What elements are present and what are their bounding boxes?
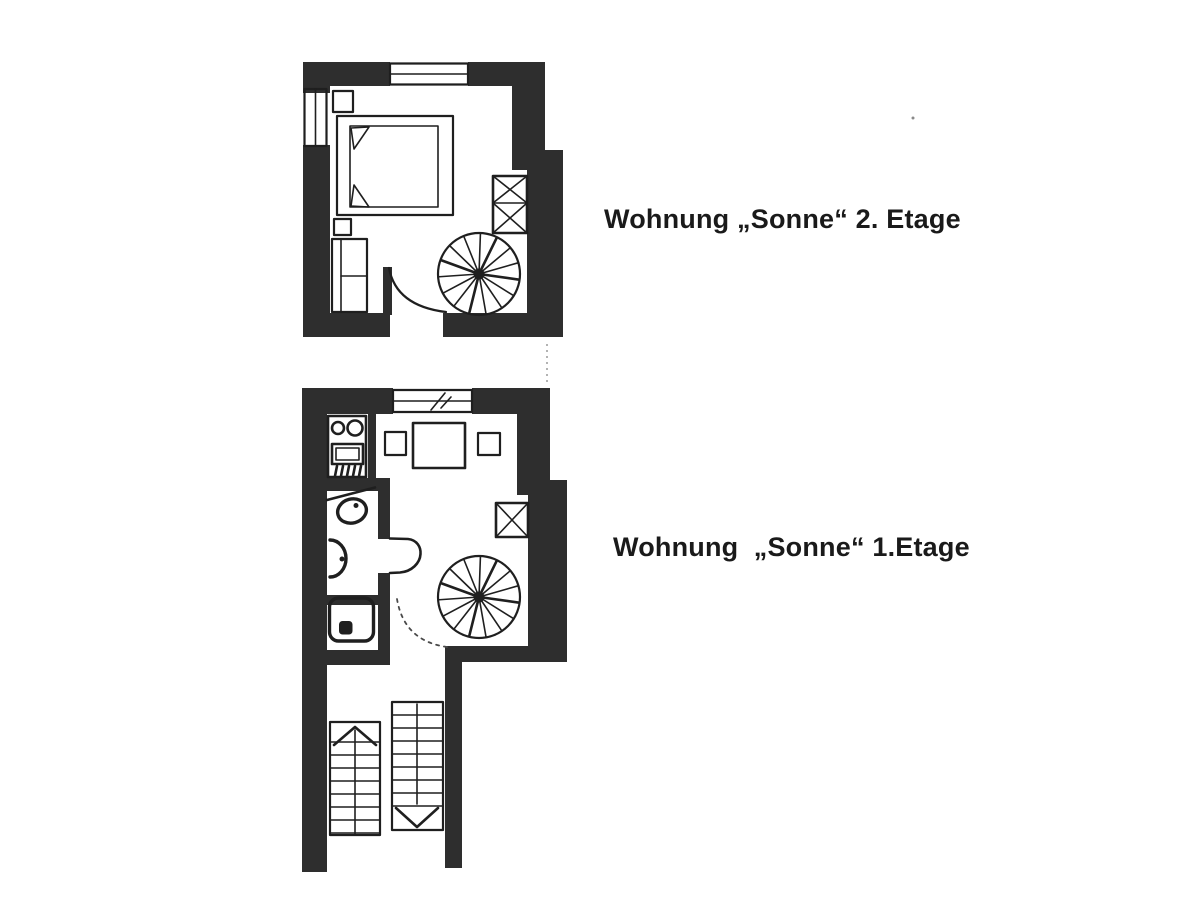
bed-frame [337,116,453,215]
spiral-spoke [479,561,496,597]
stove-burners-icon [348,421,363,436]
scan-speck [912,117,915,120]
kitchenette-icon [328,416,366,477]
shelf-cabinet-icon [496,503,528,537]
window-top-icon [390,64,468,85]
window-top-icon [393,390,472,412]
floor-1-caption: Wohnung „Sonne“ 1.Etage [613,532,970,563]
straight-stairs-icon [392,702,443,830]
drawer-handle [341,466,343,476]
bed-mattress [350,126,438,207]
floor-2-plan [303,62,563,337]
bathroom [327,488,421,642]
toilet-flush-dot [340,557,345,562]
spiral-spoke [479,557,480,597]
floor-2-caption: Wohnung „Sonne“ 2. Etage [604,204,961,235]
spiral-hub [474,592,485,603]
pillow [351,127,369,149]
spiral-staircase-icon [438,233,520,315]
drawer-handle [353,466,355,476]
bathroom-wall [378,489,390,539]
shower-drain [339,621,353,635]
wall-segment [512,150,563,170]
washbasin-icon [335,496,369,527]
wall-segment [468,62,545,86]
shelf-cabinet-icon [493,176,527,233]
wall-segment [445,646,566,662]
wall-segment [527,168,563,337]
door-swing-icon [390,539,421,574]
double-bed-icon [337,116,453,215]
wall-segment [443,313,563,337]
sink-basin [336,448,359,460]
wall-segment [302,388,327,872]
cabinet-body [493,176,527,233]
pillow [351,185,369,207]
stove-burners-icon [332,422,344,434]
wall-segment [512,84,545,150]
wall-segment [303,145,330,337]
faucet-dot [354,503,359,508]
wall-segment [528,493,567,662]
chair-icon [385,432,406,455]
nightstand-icon [334,219,351,235]
window-left-icon [305,89,327,146]
stair-hall-wall [445,646,462,868]
spiral-spoke [442,583,479,597]
dining-table-icon [413,423,465,468]
pen-scribble [441,397,451,408]
spiral-spoke [479,234,480,274]
wardrobe-icon [332,239,367,312]
drawer-handle [347,466,349,476]
spiral-hub [474,269,485,280]
drawer-handle [359,466,361,476]
wall-segment [517,412,550,483]
wall-segment [472,388,550,414]
drawer-handle [335,466,337,476]
floor-2-walls [303,62,563,337]
wall-segment [517,480,567,495]
arrow-down-icon [396,808,438,827]
chair-icon [478,433,500,455]
spiral-staircase-icon [438,556,520,638]
floorplan-drawing [0,0,1200,900]
spiral-spoke [442,260,479,274]
bathroom-wall [302,650,390,665]
kitchen-divider-wall [368,412,376,480]
straight-stairs-icon [330,722,380,835]
dining-set [385,423,500,468]
floor-1-plan [302,388,567,872]
nightstand-icon [333,91,353,112]
spiral-spoke [479,238,496,274]
